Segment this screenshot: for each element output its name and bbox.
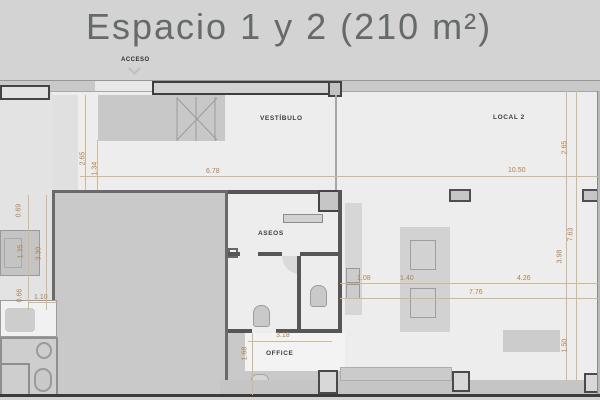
dimension-label: 10.50 (508, 167, 526, 174)
neighbor-wall (0, 363, 30, 365)
room-label-local2: LOCAL 2 (493, 114, 525, 121)
stair-inner-box (410, 240, 436, 270)
dimension-label: 4.26 (517, 275, 531, 282)
dimension-label: 7.76 (469, 289, 483, 296)
dimension-label: 1.40 (400, 275, 414, 282)
aseos-right-wall (338, 190, 342, 333)
dim-line (80, 176, 598, 177)
floorplan-canvas: Espacio 1 y 2 (210 m²) ACCESO (0, 0, 600, 400)
dimension-label: 3.18 (276, 332, 290, 339)
dimension-label: 2.65 (561, 141, 568, 155)
aseos-mid-wall (300, 252, 342, 256)
dim-line (252, 333, 253, 395)
dim-line (46, 195, 47, 310)
dimension-label: 0.66 (16, 289, 23, 303)
dimension-label: 1.34 (91, 162, 98, 176)
dimension-label: 1.08 (357, 275, 371, 282)
dim-line (248, 341, 332, 342)
bottom-boundary-line (0, 394, 600, 397)
room-label-aseos: ASEOS (258, 230, 284, 237)
column (449, 189, 471, 202)
furniture-block (503, 330, 560, 352)
pilaster (318, 370, 338, 394)
stall-divider-wall (297, 256, 301, 333)
toilet-fixture (34, 368, 52, 392)
dimension-label: 1.10 (34, 294, 48, 301)
bottom-counter (340, 367, 452, 381)
room-label-vestibulo: VESTÍBULO (260, 115, 303, 122)
dimension-label: 1.35 (17, 245, 24, 259)
dim-line (340, 298, 598, 299)
dimension-label: 3.30 (35, 247, 42, 261)
left-room-fixture (5, 308, 35, 332)
sink-counter (283, 214, 323, 223)
sink-fixture (36, 342, 52, 359)
dim-line (28, 302, 58, 303)
duct-box (346, 284, 360, 299)
dimension-label: 1.68 (241, 347, 248, 361)
office-area (245, 333, 345, 371)
toilet-fixture (253, 305, 270, 327)
dim-line (85, 95, 86, 190)
toilet-fixture (310, 285, 327, 307)
dimension-label: 6.78 (206, 168, 220, 175)
dimension-label: 7.63 (567, 228, 574, 242)
aseos-mid-wall (258, 252, 282, 256)
dim-line (28, 195, 29, 310)
dimension-label: 0.69 (15, 204, 22, 218)
core-block (52, 190, 228, 397)
dimension-label: 2.65 (79, 152, 86, 166)
dimension-label: 1.50 (561, 339, 568, 353)
neighbor-wall (28, 363, 30, 397)
dimension-label: 3.98 (556, 250, 563, 264)
room-label-office: OFFICE (266, 350, 293, 357)
aseos-mid-wall (228, 252, 240, 256)
pilaster (452, 371, 470, 392)
stair-inner-box (410, 288, 436, 318)
dim-line (340, 283, 598, 284)
dim-line (576, 91, 577, 381)
